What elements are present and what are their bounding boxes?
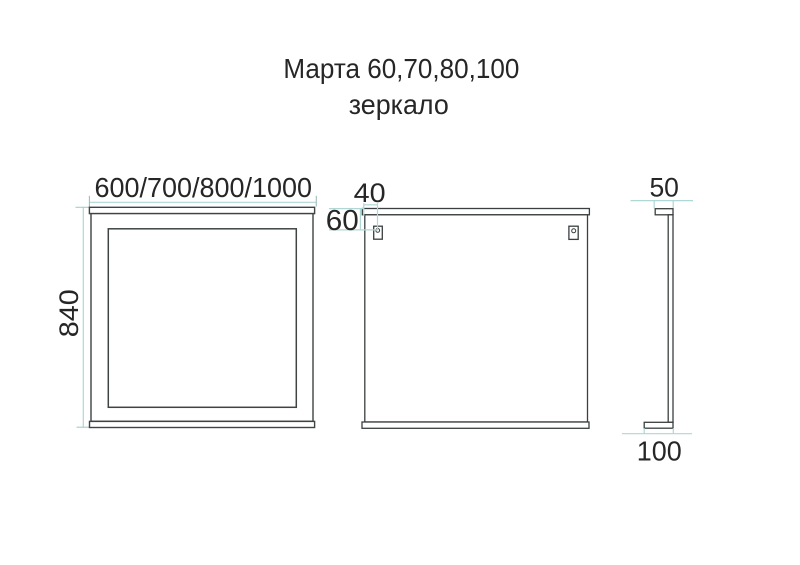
svg-text:зеркало: зеркало [349,89,449,120]
svg-text:40: 40 [354,178,386,208]
svg-text:600/700/800/1000: 600/700/800/1000 [95,172,313,203]
svg-text:Марта 60,70,80,100: Марта 60,70,80,100 [283,53,519,84]
svg-text:50: 50 [649,172,679,202]
svg-text:60: 60 [326,205,359,237]
svg-text:100: 100 [637,435,682,466]
svg-text:840: 840 [54,289,84,337]
